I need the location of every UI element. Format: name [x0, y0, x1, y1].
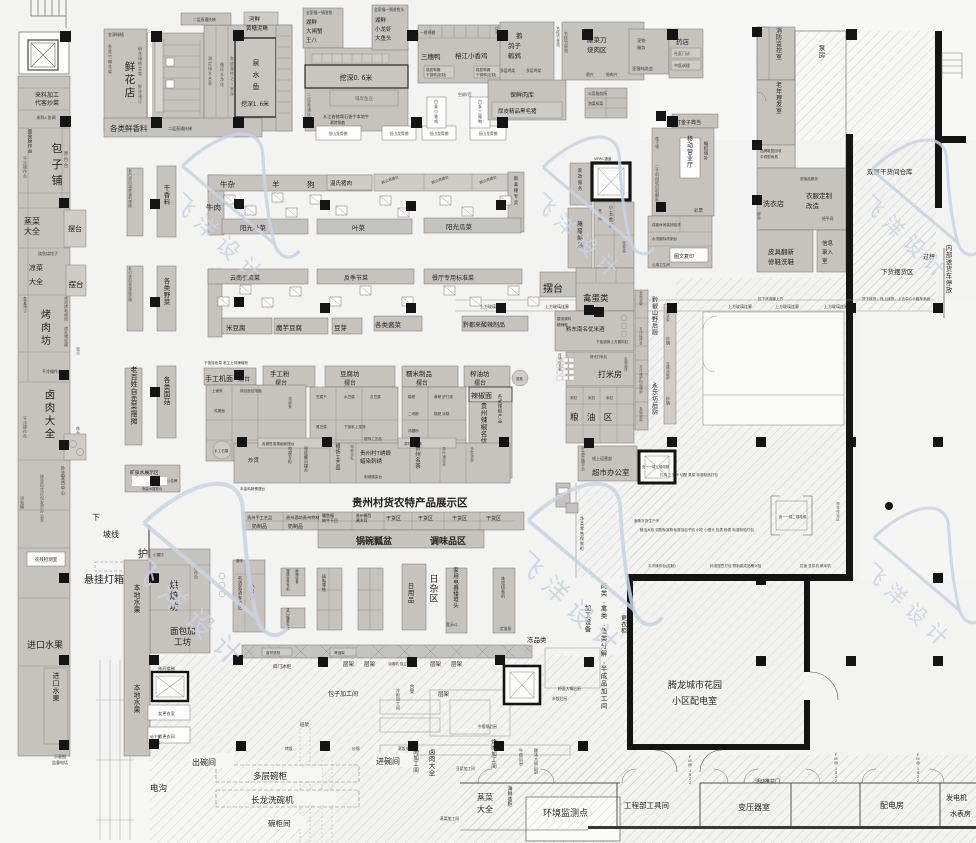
svg-text:贵州手工艺品: 贵州手工艺品	[247, 514, 272, 521]
svg-text:水表房: 水表房	[950, 809, 971, 818]
svg-text:品牌鞋复回收: 品牌鞋复回收	[760, 148, 782, 153]
svg-text:摆台: 摆台	[69, 279, 84, 289]
svg-text:糕粑 凉糕: 糕粑 凉糕	[434, 411, 450, 416]
svg-text:湖鲜: 湖鲜	[375, 16, 387, 24]
svg-text:上方玻璃连廊: 上方玻璃连廊	[775, 303, 799, 309]
svg-text:涮烤锅套: 涮烤锅套	[330, 120, 345, 125]
svg-text:活动推拉门: 活动推拉门	[755, 778, 780, 785]
svg-text:烧肉区: 烧肉区	[587, 45, 607, 54]
svg-text:炒锅: 炒锅	[352, 746, 360, 751]
svg-text:蜡染刺绣: 蜡染刺绣	[360, 457, 383, 465]
svg-text:茶叶铺古茶: 茶叶铺古茶	[442, 446, 446, 467]
svg-text:蒸菜: 蒸菜	[24, 216, 40, 226]
svg-text:米缸: 米缸	[588, 395, 596, 400]
svg-text:烧鱼烧坨子: 烧鱼烧坨子	[38, 250, 58, 256]
svg-text:鸡蛋面: 鸡蛋面	[214, 408, 225, 413]
svg-text:拉面 豆浆机 鲜米机: 拉面 豆浆机 鲜米机	[800, 563, 831, 568]
svg-text:调味品区: 调味品区	[430, 535, 466, 546]
svg-text:信息: 信息	[822, 239, 834, 247]
svg-text:社区门诊: 社区门诊	[674, 50, 690, 56]
svg-text:鲜台: 鲜台	[757, 211, 761, 220]
svg-text:低山龙骨棚: 低山龙骨棚	[479, 131, 498, 136]
svg-text:老百姓自卖菜摆摊: 老百姓自卖菜摆摊	[131, 365, 138, 425]
svg-text:来料加工: 来料加工	[35, 91, 59, 99]
svg-text:平冷操作台(定制): 平冷操作台(定制)	[648, 563, 676, 568]
svg-text:干锅鸭(定制): 干锅鸭(定制)	[476, 72, 496, 77]
svg-text:温氏猪肉: 温氏猪肉	[330, 179, 352, 187]
svg-text:粉面大锅后厨: 粉面大锅后厨	[558, 686, 581, 691]
svg-text:炒锅: 炒锅	[666, 336, 670, 345]
svg-text:鲜花预订: 鲜花预订	[138, 83, 142, 104]
svg-text:水洗服标改制台: 水洗服标改制台	[652, 236, 678, 241]
svg-text:银饰藏风摆台: 银饰藏风摆台	[304, 445, 308, 473]
svg-text:精陶零售: 精陶零售	[322, 573, 326, 592]
svg-text:手工机面: 手工机面	[205, 374, 233, 383]
svg-text:改造: 改造	[806, 201, 820, 210]
svg-text:摆台: 摆台	[474, 379, 486, 387]
svg-text:贵州名茶: 贵州名茶	[415, 444, 421, 470]
svg-text:鲜花店: 鲜花店	[125, 60, 136, 99]
svg-text:二块粑: 二块粑	[408, 411, 419, 416]
svg-text:锅碗瓢盆: 锅碗瓢盆	[355, 535, 393, 546]
svg-text:长龙洗碗机: 长龙洗碗机	[251, 795, 294, 805]
svg-text:宠物: 宠物	[637, 37, 645, 44]
svg-text:格子铺: 格子铺	[655, 136, 659, 149]
svg-text:名桂竹草鸡: 名桂竹草鸡	[556, 26, 560, 47]
svg-text:出碗间: 出碗间	[192, 757, 216, 767]
svg-text:泉水鱼: 泉水鱼	[253, 58, 260, 91]
svg-text:米科4 协调: 米科4 协调	[36, 114, 55, 120]
svg-text:大全: 大全	[24, 226, 40, 236]
svg-text:各皮蛋挖之1米深: 各皮蛋挖之1米深	[230, 55, 234, 96]
svg-text:冻品类: 冻品类	[527, 635, 547, 644]
svg-text:停车作业区: 停车作业区	[836, 501, 840, 522]
svg-text:塌岸鱼庄: 塌岸鱼庄	[355, 95, 373, 102]
svg-text:泡菜榨菜: 泡菜榨菜	[588, 101, 603, 106]
svg-text:灰豆腐: 灰豆腐	[370, 394, 381, 399]
svg-text:大闸蟹: 大闸蟹	[306, 27, 323, 35]
svg-text:台架: 台架	[410, 683, 415, 695]
svg-text:上方玻璃连廊: 上方玻璃连廊	[824, 303, 848, 309]
svg-text:酸汤调料: 酸汤调料	[557, 316, 572, 321]
svg-text:米缸: 米缸	[570, 395, 578, 400]
svg-text:各类面菇: 各类面菇	[164, 375, 171, 406]
svg-text:湿面条: 湿面条	[288, 396, 292, 409]
svg-text:厚皮精品黑毛猪: 厚皮精品黑毛猪	[498, 107, 537, 115]
svg-text:进口水果: 进口水果	[53, 672, 60, 703]
svg-text:示意图: 示意图	[54, 753, 66, 759]
svg-text:多层货架: 多层货架	[470, 446, 474, 463]
svg-text:进口水果: 进口水果	[27, 639, 63, 650]
svg-text:王八: 王八	[306, 37, 318, 44]
svg-text:干货区: 干货区	[386, 515, 401, 522]
svg-text:白条小香鸡: 白条小香鸡	[434, 99, 438, 124]
svg-text:四门冰柜: 四门冰柜	[273, 663, 291, 670]
svg-text:定溢条: 定溢条	[500, 626, 512, 631]
svg-text:扎肉 三支杯 切配 蒸菜 标准制造打包: 扎肉 三支杯 切配 蒸菜 标准制造打包	[660, 472, 718, 477]
svg-text:鲢活大砍 切配标准粉标准馅包子馅 小吃: 鲢活大砍 切配标准粉标准馅包子馅 小吃 小馒头 包表 粉表 标准粉馅打包	[640, 527, 754, 532]
svg-text:愈恼品服务: 愈恼品服务	[800, 176, 818, 181]
svg-text:贵州村T绣娘: 贵州村T绣娘	[360, 449, 391, 457]
svg-text:鹅: 鹅	[516, 31, 523, 40]
svg-text:干货区: 干货区	[486, 515, 501, 522]
svg-text:二层直通扶梯: 二层直通扶梯	[168, 125, 192, 131]
svg-text:多层碗柜: 多层碗柜	[253, 771, 288, 781]
svg-text:奶制品: 奶制品	[288, 523, 303, 530]
svg-text:小区配电室: 小区配电室	[672, 695, 717, 706]
svg-text:各款竹编花架: 各款竹编花架	[108, 43, 112, 74]
svg-text:负一一楼二楼电梯: 负一一楼二楼电梯	[642, 464, 670, 469]
svg-text:米缸: 米缸	[606, 395, 614, 400]
svg-text:水豆腐: 水豆腐	[344, 394, 355, 399]
svg-text:原包台: 原包台	[64, 151, 69, 169]
svg-text:三穗鸭: 三穗鸭	[421, 52, 441, 61]
svg-text:悬挂灯箱: 悬挂灯箱	[84, 573, 124, 586]
svg-text:工坊: 工坊	[174, 637, 192, 647]
svg-text:挖深0. 6米: 挖深0. 6米	[340, 73, 373, 82]
svg-text:编织缝补: 编织缝补	[704, 140, 709, 162]
svg-text:糍粑: 糍粑	[408, 394, 416, 399]
svg-text:狗: 狗	[307, 179, 315, 189]
svg-text:银饰工艺品: 银饰工艺品	[364, 436, 382, 441]
svg-text:绢花绿植盆栽: 绢花绿植盆栽	[138, 45, 142, 76]
svg-text:刺绣蜡染台: 刺绣蜡染台	[364, 474, 382, 479]
svg-text:空调7匹: 空调7匹	[458, 92, 472, 97]
svg-text:发电机: 发电机	[946, 793, 967, 802]
svg-text:电沟: 电沟	[150, 783, 167, 793]
svg-text:测定绿水合养: 测定绿水合养	[208, 55, 212, 86]
svg-text:炒货: 炒货	[248, 456, 260, 464]
svg-text:卤肉大全: 卤肉大全	[429, 747, 436, 777]
svg-text:辣椒面: 辣椒面	[471, 391, 492, 400]
svg-text:窗帘遮阳: 窗帘遮阳	[266, 650, 281, 655]
svg-text:豆腐干: 豆腐干	[316, 394, 327, 399]
svg-text:味觉扭蛋机: 味觉扭蛋机	[501, 575, 505, 598]
svg-text:各类野菜: 各类野菜	[164, 276, 171, 306]
svg-text:层架: 层架	[451, 661, 463, 668]
svg-text:坡线: 坡线	[103, 529, 119, 539]
svg-text:香蕉: 香蕉	[516, 376, 523, 381]
svg-text:肉牛干巴: 肉牛干巴	[322, 517, 338, 523]
svg-text:图文复印: 图文复印	[674, 253, 694, 260]
svg-text:上方玻璃连廊: 上方玻璃连廊	[728, 303, 752, 309]
svg-text:榨油坊: 榨油坊	[470, 369, 490, 378]
svg-text:银饰工艺品: 银饰工艺品	[335, 443, 340, 472]
svg-text:净菜零售保鲜柜: 净菜零售保鲜柜	[580, 515, 584, 551]
svg-text:低山龙骨棚: 低山龙骨棚	[390, 131, 409, 136]
svg-text:面食操作台: 面食操作台	[28, 129, 33, 154]
svg-text:湖鲜: 湖鲜	[306, 18, 318, 26]
svg-text:消防监控室: 消防监控室	[776, 27, 782, 61]
svg-text:衣服定制: 衣服定制	[806, 191, 833, 200]
svg-text:老年理发室: 老年理发室	[776, 81, 782, 115]
svg-text:特种手礼: 特种手礼	[350, 444, 354, 461]
svg-text:服务: 服务	[637, 44, 646, 51]
svg-text:下饭酒换上方酱料缸: 下饭酒换上方酱料缸	[596, 339, 629, 344]
svg-text:叶菜: 叶菜	[352, 223, 366, 232]
svg-text:摆台: 摆台	[68, 224, 82, 233]
svg-text:层架: 层架	[430, 661, 442, 668]
svg-text:地下室: 地下室	[150, 734, 161, 739]
svg-text:各类酱菜: 各类酱菜	[375, 320, 402, 329]
svg-text:倔兴: 倔兴	[586, 72, 594, 77]
svg-text:负一一楼二楼电梯: 负一一楼二楼电梯	[779, 514, 807, 519]
svg-text:碗柜间: 碗柜间	[268, 818, 291, 828]
svg-text:反季节菜: 反季节菜	[344, 274, 368, 282]
svg-text:低山龙骨棚: 低山龙骨棚	[430, 131, 449, 136]
svg-text:啤酒架: 啤酒架	[334, 650, 345, 655]
svg-text:公告牌: 公告牌	[167, 478, 178, 483]
svg-text:干货区: 干货区	[418, 515, 433, 522]
svg-text:电视专柜: 电视专柜	[288, 445, 292, 464]
svg-text:臭豆腐: 臭豆腐	[316, 424, 327, 429]
svg-text:连卷袋: 连卷袋	[622, 240, 626, 253]
svg-text:粮 油 区: 粮 油 区	[570, 412, 615, 422]
svg-text:金源绿植: 金源绿植	[108, 31, 124, 37]
svg-text:阳光瓜菜: 阳光瓜菜	[446, 222, 473, 231]
svg-text:楼居鸭棚: 楼居鸭棚	[476, 67, 491, 72]
svg-text:米饭后厨: 米饭后厨	[552, 696, 567, 701]
svg-text:手工石磨: 手工石磨	[214, 448, 229, 453]
svg-text:平冷操作台: 平冷操作台	[23, 156, 27, 178]
svg-text:酱木耳: 酱木耳	[356, 518, 368, 523]
svg-text:大鱼头: 大鱼头	[375, 34, 392, 42]
svg-text:拉下货连廊上方: 拉下货连廊上方	[758, 296, 784, 301]
svg-text:牛杂: 牛杂	[220, 179, 235, 189]
svg-text:楼居鸭棚: 楼居鸭棚	[426, 67, 441, 72]
svg-text:豆腐坊: 豆腐坊	[340, 369, 360, 378]
svg-text:层架: 层架	[364, 661, 376, 668]
svg-text:彩票: 彩票	[694, 207, 703, 214]
svg-text:监督电话: 监督电话	[52, 759, 68, 765]
svg-text:公用卫生间: 公用卫生间	[652, 262, 670, 267]
svg-text:现代打米机: 现代打米机	[590, 354, 608, 359]
svg-text:公用服务所: 公用服务所	[588, 91, 607, 96]
svg-text:泵房: 泵房	[819, 44, 826, 59]
svg-text:低山龙骨棚: 低山龙骨棚	[329, 131, 348, 136]
svg-text:烤肉坊: 烤肉坊	[41, 308, 51, 347]
svg-text:各类鲜香料: 各类鲜香料	[110, 123, 148, 133]
svg-text:层架: 层架	[438, 691, 450, 698]
svg-text:打米房: 打米房	[598, 369, 622, 379]
svg-text:循环水净化: 循环水净化	[220, 61, 224, 87]
svg-text:糟辣椒: 糟辣椒	[557, 322, 568, 327]
svg-text:鹌鹑: 鹌鹑	[508, 51, 522, 60]
svg-text:变压器室: 变压器室	[738, 802, 770, 812]
svg-text:腊味: 腊味	[236, 558, 243, 563]
svg-text:二手机回收旧机翻新: 二手机回收旧机翻新	[655, 165, 659, 202]
svg-text:皮具翻新: 皮具翻新	[768, 247, 795, 256]
svg-text:包子加工间: 包子加工间	[328, 690, 358, 698]
svg-text:日杂区: 日杂区	[429, 574, 438, 603]
svg-text:一層鸡棚: 一層鸡棚	[420, 30, 435, 35]
svg-text:烤饭: 烤饭	[285, 746, 293, 751]
svg-text:伞修配雨具: 伞修配雨具	[760, 154, 778, 159]
svg-text:干货区: 干货区	[452, 515, 467, 522]
svg-text:MFWC通道: MFWC通道	[594, 156, 612, 161]
svg-text:烤鸡烤鸭烤肉: 烤鸡烤鸭烤肉	[64, 296, 68, 322]
svg-text:线上运营部: 线上运营部	[592, 455, 612, 461]
svg-text:白条三穗鸭: 白条三穗鸭	[478, 99, 482, 124]
svg-text:经平间: 经平间	[822, 216, 834, 221]
svg-text:面条冻货生产令: 面条冻货生产令	[634, 518, 660, 523]
svg-text:鲜禽棚专卖: 鲜禽棚专卖	[514, 175, 519, 206]
svg-text:黄鳝泥鳅: 黄鳝泥鳅	[246, 24, 269, 32]
svg-text:工程部工具间: 工程部工具间	[624, 800, 669, 810]
svg-text:土面条: 土面条	[212, 388, 223, 393]
svg-text:圣银纯洗会: 圣银纯洗会	[632, 65, 654, 72]
svg-text:贵州酱西: 贵州酱西	[356, 513, 371, 518]
svg-text:干锅鸭(定制): 干锅鸭(定制)	[426, 72, 446, 77]
svg-text:打金子典当: 打金子典当	[676, 119, 701, 126]
svg-text:移动营业厅: 移动营业厅	[687, 135, 693, 169]
svg-text:家用电器矮堆头: 家用电器矮堆头	[453, 566, 459, 610]
svg-text:奶制品: 奶制品	[252, 523, 267, 530]
svg-text:永乐坊后厨: 永乐坊后厨	[652, 382, 658, 416]
svg-text:录入: 录入	[822, 248, 834, 256]
svg-text:腾龙城市花园: 腾龙城市花园	[668, 679, 722, 690]
svg-text:多层鸡架: 多层鸡架	[526, 68, 541, 73]
svg-text:摆台: 摆台	[416, 379, 428, 387]
svg-text:层架: 层架	[343, 661, 355, 668]
svg-text:河鲜: 河鲜	[249, 15, 261, 23]
svg-text:二层直通扶梯: 二层直通扶梯	[193, 17, 216, 22]
svg-text:代客炒菜: 代客炒菜	[35, 99, 59, 107]
svg-text:修鞋洗鞋: 修鞋洗鞋	[768, 257, 795, 266]
svg-text:矿泉水展示区: 矿泉水展示区	[130, 469, 159, 476]
svg-text:全家福一锅香鱼: 全家福一锅香鱼	[306, 10, 333, 15]
svg-text:宽汤斗: 宽汤斗	[446, 622, 458, 627]
svg-text:下饭私上菜馆: 下饭私上菜馆	[344, 424, 366, 429]
svg-text:牛瘪锅后厨: 牛瘪锅后厨	[478, 724, 497, 729]
svg-text:按单捡货打包发货办公室: 按单捡货打包发货办公室	[40, 473, 44, 522]
svg-text:摆台: 摆台	[344, 379, 356, 387]
svg-text:魔芋豆腐: 魔芋豆腐	[276, 323, 303, 332]
svg-text:外卖发货中心: 外卖发货中心	[61, 465, 66, 495]
svg-text:老引进白菜保底农摊: 老引进白菜保底农摊	[128, 266, 132, 302]
svg-text:瓶装水摆放台: 瓶装水摆放台	[142, 486, 163, 491]
svg-text:黔都来酸辣制品: 黔都来酸辣制品	[463, 321, 505, 329]
svg-text:标准馒豆打包 预制菜成品桶对馅: 标准馒豆打包 预制菜成品桶对馅	[710, 563, 762, 568]
svg-text:豆芽: 豆芽	[334, 323, 348, 332]
svg-text:倔肉兴: 倔肉兴	[606, 72, 618, 77]
svg-text:更衣柜: 更衣柜	[621, 615, 627, 635]
svg-text:外卖直播平台: 外卖直播平台	[581, 446, 585, 472]
svg-text:上方玻璃连廊: 上方玻璃连廊	[545, 303, 569, 309]
svg-text:糯米制品: 糯米制品	[406, 369, 432, 378]
svg-text:黔椒山野后厨: 黔椒山野后厨	[652, 296, 658, 336]
svg-text:货下找货，找上找货，上去中心卡租车系统: 货下找货，找上找货，上去中心卡租车系统	[862, 296, 931, 301]
svg-text:挖深1. 6米: 挖深1. 6米	[241, 100, 269, 108]
svg-text:日用品: 日用品	[408, 582, 415, 604]
svg-text:药店: 药店	[676, 37, 690, 46]
svg-text:榕江小香鸡: 榕江小香鸡	[455, 51, 488, 60]
svg-text:炒锅: 炒锅	[666, 396, 670, 405]
svg-text:小模坊: 小模坊	[153, 552, 164, 557]
svg-text:下饭特色菜 老工土特辣椒粉: 下饭特色菜 老工土特辣椒粉	[204, 360, 249, 365]
svg-text:钢丝面饸饹面: 钢丝面饸饹面	[240, 388, 262, 393]
svg-text:摆台: 摆台	[543, 282, 563, 295]
svg-text:全家福一锅香鱼头: 全家福一锅香鱼头	[374, 7, 405, 12]
svg-text:平冷操作台: 平冷操作台	[23, 416, 27, 438]
svg-text:羊: 羊	[272, 179, 280, 189]
svg-text:浸泡桶: 浸泡桶	[20, 495, 24, 510]
svg-text:保鲜肉库: 保鲜肉库	[510, 91, 534, 99]
svg-text:禽蛋类: 禽蛋类	[583, 293, 609, 303]
svg-text:老白或白酒类调料摆摊: 老白或白酒类调料摆摊	[128, 168, 132, 208]
svg-text:进碗间: 进碗间	[376, 756, 400, 766]
svg-text:贵州村货农特产品展示区: 贵州村货农特产品展示区	[352, 496, 468, 509]
svg-text:女更衣室: 女更衣室	[158, 710, 175, 717]
svg-text:下货摆货区: 下货摆货区	[881, 267, 914, 276]
svg-text:多层鸡架: 多层鸡架	[500, 68, 515, 73]
svg-text:各宴预订: 各宴预订	[23, 296, 27, 313]
svg-text:农残检测室: 农残检测室	[35, 556, 58, 563]
svg-text:中医调理: 中医调理	[674, 62, 690, 68]
svg-text:小龙虾: 小龙虾	[375, 25, 392, 33]
svg-text:成都休闲装好欧货: 成都休闲装好欧货	[652, 222, 681, 227]
svg-text:单开楼梯: 单开楼梯	[158, 665, 175, 672]
svg-text:室: 室	[822, 257, 828, 265]
svg-text:米豆腐: 米豆腐	[226, 323, 246, 332]
svg-text:下: 下	[92, 513, 100, 522]
svg-text:手工粉: 手工粉	[270, 369, 290, 378]
svg-text:黔东南名优米酒: 黔东南名优米酒	[566, 325, 605, 333]
svg-text:黄粑 驴打滚: 黄粑 驴打滚	[434, 394, 453, 399]
svg-text:配电房: 配电房	[880, 800, 904, 810]
svg-text:贵州酒坊贵州特材: 贵州酒坊贵州特材	[286, 514, 320, 521]
svg-text:名桂竹原鸡: 名桂竹原鸡	[564, 30, 568, 53]
svg-text:本金鸡精蛋摆台: 本金鸡精蛋摆台	[240, 486, 266, 491]
svg-text:从江香猪塌石香牛本地牛: 从江香猪塌石香牛本地牛	[323, 113, 369, 120]
svg-text:蒸菜加工间: 蒸菜加工间	[440, 816, 459, 821]
svg-text:蒸饭车: 蒸饭车	[398, 746, 410, 751]
svg-text:本地水果: 本地水果	[134, 683, 141, 714]
svg-text:家政服务: 家政服务	[578, 167, 583, 192]
svg-text:汤圆粉: 汤圆粉	[408, 428, 419, 433]
svg-text:包子铺: 包子铺	[52, 142, 63, 187]
svg-text:各式辣椒产品: 各式辣椒产品	[498, 393, 503, 424]
svg-text:鸽子: 鸽子	[508, 41, 522, 50]
svg-text:冷柜加工间: 冷柜加工间	[396, 687, 400, 710]
svg-text:餐厅专用标准菜: 餐厅专用标准菜	[432, 274, 474, 282]
svg-text:超市办公室: 超市办公室	[592, 467, 630, 477]
svg-text:洗衣店: 洗衣店	[763, 199, 784, 208]
